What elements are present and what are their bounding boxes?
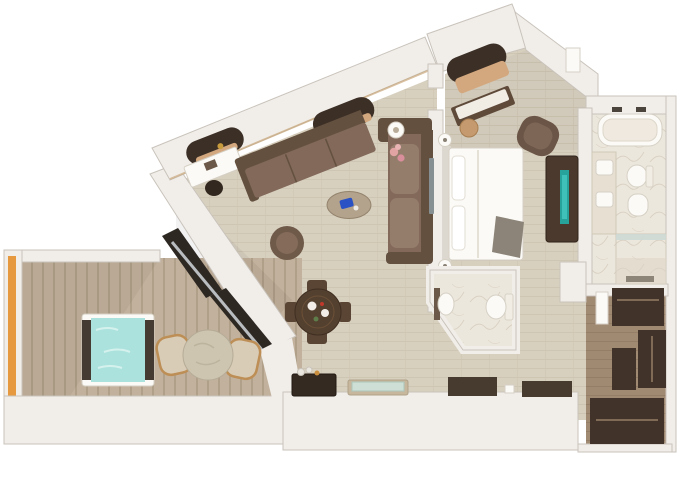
shower-glass	[616, 234, 666, 240]
bath-fixture	[612, 107, 622, 112]
suite-floor-plan: 3D rendered floor plan of a suite with b…	[0, 0, 680, 486]
door-mat-left	[448, 377, 497, 396]
bed-throw	[492, 216, 524, 258]
swivel-chair-seat	[276, 232, 298, 254]
partition-stub	[428, 64, 443, 88]
pillow-bottom	[452, 206, 465, 250]
plate	[321, 309, 329, 317]
toilet-tank	[646, 166, 653, 187]
wardrobe-top	[612, 288, 664, 326]
wardrobe-left	[612, 348, 636, 390]
bath-fixture	[636, 107, 646, 112]
sink-1	[596, 160, 613, 175]
bench-glass-top	[352, 382, 404, 391]
desk-chair	[205, 180, 223, 196]
bedside-lamp-top-bulb	[443, 138, 447, 142]
coffee-table-dish	[354, 206, 359, 211]
hot-tub-side-right	[145, 320, 154, 380]
bathtub-basin	[603, 119, 657, 141]
floor-plan-stage: 3D rendered floor plan of a suite with b…	[0, 0, 680, 486]
right-outer-wall	[666, 96, 676, 452]
sofa-cushion-2	[390, 198, 419, 248]
vanity-stool	[460, 119, 478, 137]
threshold-plate	[505, 385, 514, 393]
guest-sink	[438, 293, 454, 315]
bedroom-hall-wall	[560, 262, 586, 302]
door-mat-right	[522, 381, 572, 397]
shower-drain	[626, 276, 654, 282]
flower-decor	[397, 154, 404, 161]
framed-panel	[566, 48, 580, 72]
tv-screen-glow	[562, 175, 567, 219]
bidet	[628, 194, 648, 216]
bottle	[306, 367, 312, 373]
closet-bottom-wall	[578, 444, 672, 452]
outdoor-table	[183, 330, 233, 380]
toilet	[627, 165, 647, 187]
sofa-arm-bottom	[386, 252, 433, 264]
pillow-top	[452, 156, 465, 200]
guest-toilet	[486, 295, 506, 319]
bathroom-left-wall	[578, 108, 592, 288]
plate	[308, 302, 317, 311]
bottle	[298, 369, 305, 376]
hot-tub-side-left	[82, 320, 91, 380]
side-table-lamp	[393, 127, 399, 133]
wall-tv	[429, 158, 434, 214]
sink-2	[596, 192, 613, 207]
decanter	[315, 371, 320, 376]
flower-decor	[395, 144, 401, 150]
balcony-bottom-wall	[4, 396, 305, 444]
bathroom-top-wall	[586, 96, 676, 114]
candle-decor	[320, 302, 324, 306]
closet-shelf	[596, 292, 608, 324]
bottom-outer-wall	[283, 392, 578, 450]
plant-decor	[314, 317, 319, 322]
bar-cabinet	[292, 374, 336, 396]
balcony-top-wall	[4, 250, 160, 262]
